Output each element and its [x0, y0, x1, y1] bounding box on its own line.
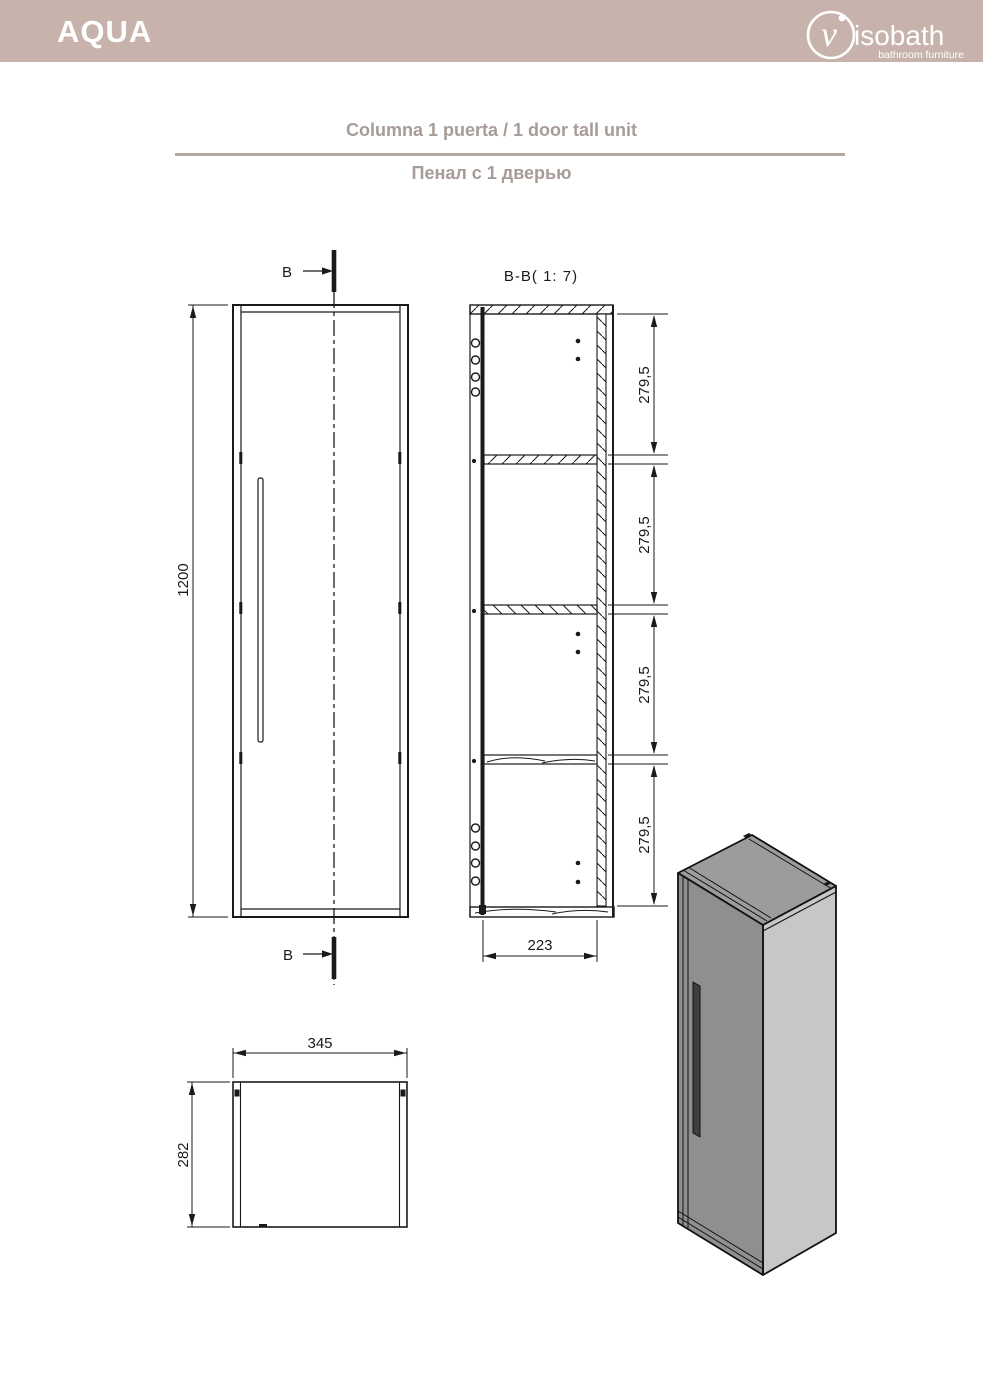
cut-label-top: B	[282, 264, 292, 281]
cut-marker-top: B	[282, 250, 334, 292]
visobath-logo-icon: v isobath bathroom furniture	[798, 5, 978, 61]
product-title-ru: Пенал с 1 дверью	[0, 163, 983, 184]
title-divider	[175, 153, 845, 156]
plan-width-dim: 345	[307, 1035, 332, 1052]
shelf-1	[484, 455, 597, 464]
logo-name: isobath	[854, 20, 944, 51]
section-top-panel	[470, 305, 613, 314]
logo-initial: v	[821, 14, 837, 54]
front-height-dim: 1200	[175, 563, 192, 596]
iso-side-face	[763, 886, 836, 1275]
compartment-dim-3: 279,5	[636, 666, 653, 704]
plan-depth-dim: 282	[175, 1142, 192, 1167]
compartment-dim-2: 279,5	[636, 516, 653, 554]
iso-front-face	[678, 873, 763, 1275]
section-bottom-panel	[470, 907, 614, 917]
bottom-view: 345 282	[175, 1035, 407, 1228]
compartment-dim-4: 279,5	[636, 816, 653, 854]
bottom-view-outline	[233, 1082, 407, 1227]
cut-label-bottom: B	[283, 947, 293, 964]
shelf-2	[484, 605, 597, 614]
dim-223: 223	[483, 920, 597, 962]
dim-282: 282	[175, 1082, 230, 1227]
visobath-logo: v isobath bathroom furniture	[798, 5, 978, 66]
section-view-label: B-B( 1: 7)	[504, 268, 578, 285]
catalog-page: AQUA v isobath bathroom furniture Column…	[0, 0, 983, 1396]
dim-345: 345	[233, 1035, 407, 1078]
iso-view	[678, 833, 836, 1275]
product-title-es-en: Columna 1 puerta / 1 door tall unit	[0, 120, 983, 141]
logo-dot-icon	[839, 15, 846, 22]
section-view: B-B( 1: 7)	[470, 268, 668, 962]
door-handle	[258, 478, 263, 742]
iso-door-handle	[693, 982, 700, 1137]
cut-marker-bottom: B	[283, 937, 334, 979]
page-header: AQUA v isobath bathroom furniture	[0, 0, 983, 62]
collection-name: AQUA	[57, 14, 152, 50]
compartment-dim-1: 279,5	[636, 366, 653, 404]
section-back-panel	[597, 314, 606, 906]
logo-tagline: bathroom furniture	[878, 49, 964, 61]
front-view: B B 1200	[175, 250, 408, 985]
dim-compartments: 279,5 279,5 279,5 279,5	[608, 314, 668, 906]
dim-1200: 1200	[175, 305, 228, 917]
section-width-dim: 223	[527, 937, 552, 954]
technical-drawing: B B 1200 B-B( 1: 7)	[0, 0, 983, 1396]
